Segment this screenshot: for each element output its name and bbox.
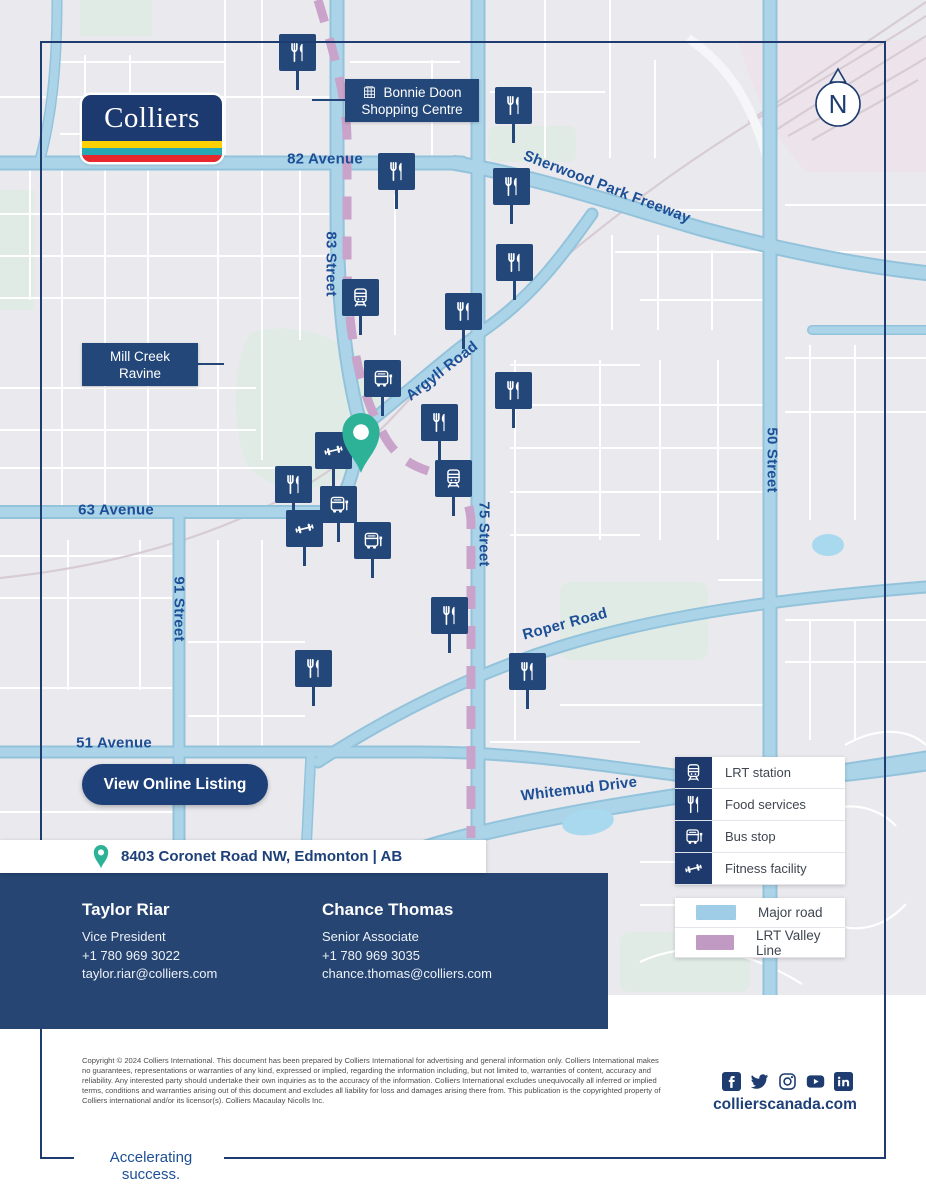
youtube-icon[interactable] — [806, 1072, 825, 1091]
poi-food — [495, 372, 532, 409]
contact-card: Taylor RiarVice President+1 780 969 3022… — [82, 900, 217, 984]
food-icon — [438, 604, 461, 627]
road-label-82-avenue: 82 Avenue — [287, 151, 363, 168]
callout-mill-creek: Mill Creek Ravine — [82, 343, 198, 386]
poi-stem — [296, 70, 299, 90]
callout-line: Shopping Centre — [361, 101, 462, 118]
bus-icon — [675, 821, 712, 853]
poi-stem — [332, 468, 335, 488]
frame-top — [40, 41, 886, 43]
poi-food — [495, 87, 532, 124]
address-bar: 8403 Coronet Road NW, Edmonton | AB — [0, 840, 486, 873]
legend-label: Bus stop — [712, 821, 845, 853]
contact-phone: +1 780 969 3022 — [82, 947, 217, 966]
view-online-listing-button[interactable]: View Online Listing — [82, 764, 268, 805]
bus-icon — [361, 529, 384, 552]
poi-food — [378, 153, 415, 190]
flyer-page: 82 Avenue83 StreetSherwood Park FreewayA… — [0, 0, 926, 1200]
frame-bottom-stub — [40, 1157, 74, 1159]
food-icon — [502, 379, 525, 402]
poi-lrt — [435, 460, 472, 497]
colliers-logo: Colliers — [82, 95, 222, 162]
food-icon — [502, 94, 525, 117]
legend-row-major-road: Major road — [675, 898, 845, 928]
website-link[interactable]: collierscanada.com — [700, 1096, 870, 1114]
poi-stem — [395, 189, 398, 209]
legend-label: LRT Valley Line — [756, 928, 845, 958]
road-label-63-avenue: 63 Avenue — [78, 502, 154, 519]
poi-stem — [438, 440, 441, 460]
fitness-icon — [293, 517, 316, 540]
property-address: 8403 Coronet Road NW, Edmonton | AB — [121, 848, 402, 865]
legend-lines: Major roadLRT Valley Line — [675, 898, 845, 958]
compass-label: N — [829, 89, 848, 119]
food-icon — [675, 789, 712, 821]
callout-connector — [312, 99, 345, 101]
poi-stem — [337, 522, 340, 542]
food-icon — [282, 473, 305, 496]
legend-swatch — [696, 905, 736, 920]
road-label-91-street: 91 Street — [171, 576, 188, 641]
road-label-83-street: 83 Street — [323, 231, 340, 296]
logo-stripe-red — [82, 155, 222, 162]
legend-label: Food services — [712, 789, 845, 821]
food-icon — [500, 175, 523, 198]
logo-wordmark: Colliers — [82, 95, 222, 141]
instagram-icon[interactable] — [778, 1072, 797, 1091]
bus-icon — [371, 367, 394, 390]
road-label-50-street: 50 Street — [764, 427, 781, 492]
poi-food — [493, 168, 530, 205]
twitter-icon[interactable] — [750, 1072, 769, 1091]
building-icon — [362, 85, 377, 100]
compass-icon: N — [812, 65, 864, 129]
legend-row-lrt: LRT station — [675, 757, 845, 789]
linkedin-icon[interactable] — [834, 1072, 853, 1091]
food-icon — [286, 41, 309, 64]
poi-stem — [303, 546, 306, 566]
food-icon — [385, 160, 408, 183]
food-icon — [302, 657, 325, 680]
poi-stem — [452, 496, 455, 516]
map-pin-icon — [340, 413, 382, 475]
bus-icon — [327, 493, 350, 516]
callout-line: Ravine — [119, 365, 161, 382]
copyright-text: Copyright © 2024 Colliers International.… — [82, 1056, 668, 1106]
poi-stem — [512, 408, 515, 428]
poi-food — [421, 404, 458, 441]
poi-stem — [526, 689, 529, 709]
contact-title: Vice President — [82, 928, 217, 947]
legend-label: Fitness facility — [712, 853, 845, 885]
poi-stem — [512, 123, 515, 143]
poi-food — [445, 293, 482, 330]
poi-stem — [513, 280, 516, 300]
frame-right — [884, 41, 886, 1159]
poi-lrt — [342, 279, 379, 316]
lrt-icon — [349, 286, 372, 309]
food-icon — [516, 660, 539, 683]
legend-label: Major road — [758, 905, 823, 920]
legend-label: LRT station — [712, 757, 845, 789]
contact-email: taylor.riar@colliers.com — [82, 965, 217, 984]
location-pin-icon — [93, 845, 109, 869]
poi-food — [509, 653, 546, 690]
contact-name: Chance Thomas — [322, 900, 492, 920]
logo-stripe-yellow — [82, 141, 222, 148]
legend-row-food: Food services — [675, 789, 845, 821]
fitness-icon — [675, 853, 712, 885]
north-indicator: N — [812, 65, 864, 134]
contact-name: Taylor Riar — [82, 900, 217, 920]
social-links — [722, 1072, 853, 1091]
legend-row-fitness: Fitness facility — [675, 853, 845, 885]
poi-food — [496, 244, 533, 281]
poi-food — [431, 597, 468, 634]
road-label-51-avenue: 51 Avenue — [76, 735, 152, 752]
legend-row-lrt-valley-line: LRT Valley Line — [675, 928, 845, 958]
poi-food — [295, 650, 332, 687]
food-icon — [452, 300, 475, 323]
food-icon — [503, 251, 526, 274]
facebook-icon[interactable] — [722, 1072, 741, 1091]
legend-row-bus: Bus stop — [675, 821, 845, 853]
food-icon — [428, 411, 451, 434]
poi-bus — [364, 360, 401, 397]
lrt-icon — [442, 467, 465, 490]
callout-line: Bonnie Doon — [383, 84, 461, 101]
contact-phone: +1 780 969 3035 — [322, 947, 492, 966]
contact-email: chance.thomas@colliers.com — [322, 965, 492, 984]
poi-food — [279, 34, 316, 71]
poi-food — [275, 466, 312, 503]
property-pin — [340, 413, 382, 480]
poi-stem — [312, 686, 315, 706]
contact-title: Senior Associate — [322, 928, 492, 947]
logo-stripe-teal — [82, 148, 222, 155]
poi-fitness — [286, 510, 323, 547]
poi-bus — [320, 486, 357, 523]
poi-stem — [371, 558, 374, 578]
callout-line: Mill Creek — [110, 348, 170, 365]
poi-stem — [359, 315, 362, 335]
contact-card: Chance ThomasSenior Associate+1 780 969 … — [322, 900, 492, 984]
legend-swatch — [696, 935, 734, 950]
callout-connector — [198, 363, 224, 365]
lrt-icon — [675, 757, 712, 789]
road-label-75-street: 75 Street — [476, 501, 493, 566]
contact-panel: Taylor RiarVice President+1 780 969 3022… — [0, 873, 608, 1029]
callout-bonnie-doon: Bonnie Doon Shopping Centre — [345, 79, 479, 122]
poi-bus — [354, 522, 391, 559]
poi-stem — [448, 633, 451, 653]
frame-bottom — [224, 1157, 886, 1159]
legend-poi: LRT stationFood servicesBus stopFitness … — [675, 757, 845, 885]
tagline: Accelerating success. — [80, 1149, 222, 1183]
poi-stem — [510, 204, 513, 224]
